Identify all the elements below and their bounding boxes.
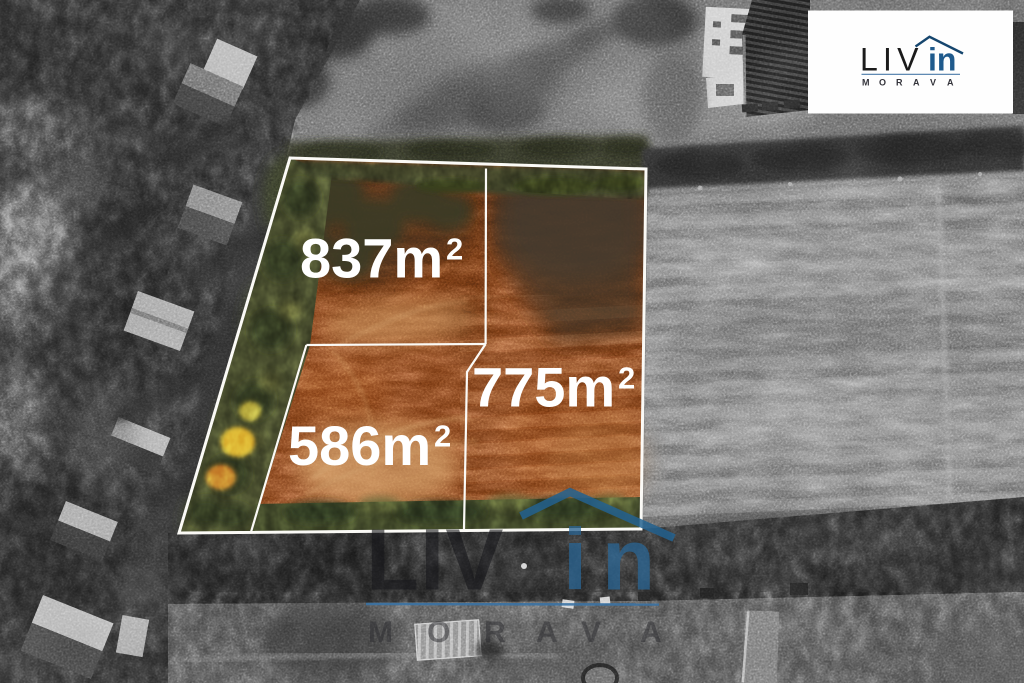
- svg-text:2: 2: [618, 361, 635, 396]
- svg-text:i: i: [563, 512, 587, 609]
- svg-text:2: 2: [446, 232, 463, 267]
- svg-text:LIV: LIV: [366, 512, 504, 609]
- svg-text:2: 2: [434, 419, 451, 454]
- svg-text:837m: 837m: [300, 227, 443, 290]
- svg-text:586m: 586m: [288, 414, 431, 477]
- svg-text:LIV: LIV: [860, 42, 924, 78]
- svg-text:775m: 775m: [472, 356, 615, 419]
